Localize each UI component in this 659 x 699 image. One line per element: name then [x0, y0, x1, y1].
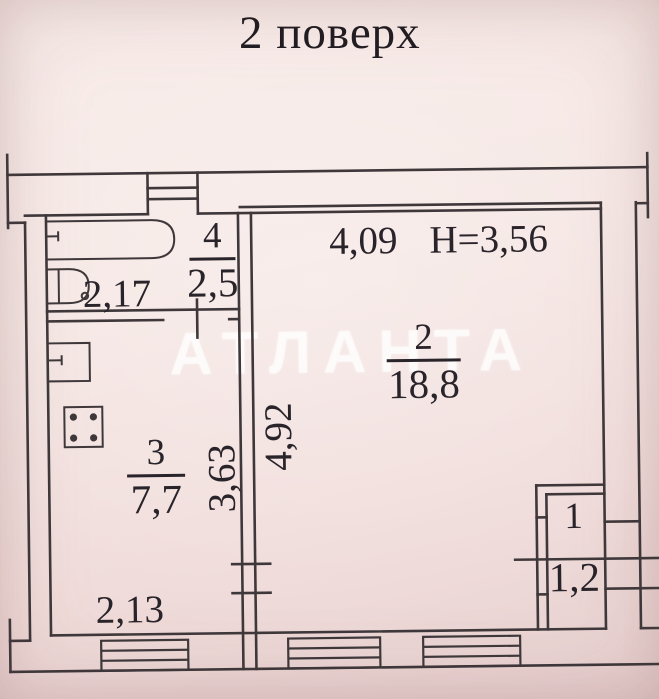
- bathtub-symbol: [46, 220, 174, 260]
- floor-plan: АТЛАНТА: [0, 0, 659, 699]
- room2-window-symbol-right: [423, 636, 520, 667]
- vent-shaft-symbol: [147, 173, 197, 215]
- room-label-bathroom: 4 2,5: [184, 217, 241, 304]
- exterior-top-line: [7, 167, 647, 175]
- room-number: 3: [146, 434, 165, 471]
- exterior-left-tick: [7, 155, 8, 228]
- left-wall-inner: [46, 215, 51, 635]
- right-wall-outer: [636, 202, 641, 628]
- floor-plan-photo: 2 поверх АТЛАНТА: [0, 0, 659, 699]
- room-label-closet: 1 1,2: [542, 498, 605, 599]
- room-label-kitchen: 3 7,7: [125, 434, 188, 521]
- kitchen-sink-symbol: [47, 343, 89, 382]
- exterior-right-tick: [647, 153, 648, 217]
- room2-dimensions: 4,09 H=3,56: [329, 216, 548, 264]
- stove-symbol: [64, 407, 102, 447]
- room-number: 2: [414, 319, 433, 356]
- kitchen-window-symbol: [101, 640, 188, 671]
- kitchen-width-dim: 2,13: [96, 590, 165, 631]
- room-number: 1: [564, 498, 583, 535]
- bathroom-width-dim: 2,17: [83, 274, 152, 315]
- room-number: 4: [203, 217, 222, 254]
- room2-window-symbol-left: [288, 637, 380, 668]
- room-area: 1,2: [549, 557, 601, 599]
- room-area: 7,7: [131, 479, 183, 521]
- room2-top-wall: [240, 203, 601, 207]
- windows: [101, 636, 520, 671]
- kitchen-depth-dim: 3,63: [199, 444, 245, 513]
- room2-depth-dim: 4,92: [256, 402, 302, 471]
- room-area: 2,5: [187, 262, 239, 304]
- fixtures: [46, 220, 177, 448]
- ceiling-height-dim: H=3,56: [429, 216, 548, 262]
- room-label-living-room: 2 18,8: [382, 318, 465, 405]
- room2-width-dim: 4,09: [329, 218, 398, 264]
- room-area: 18,8: [388, 363, 460, 405]
- left-wall-outer: [25, 223, 30, 641]
